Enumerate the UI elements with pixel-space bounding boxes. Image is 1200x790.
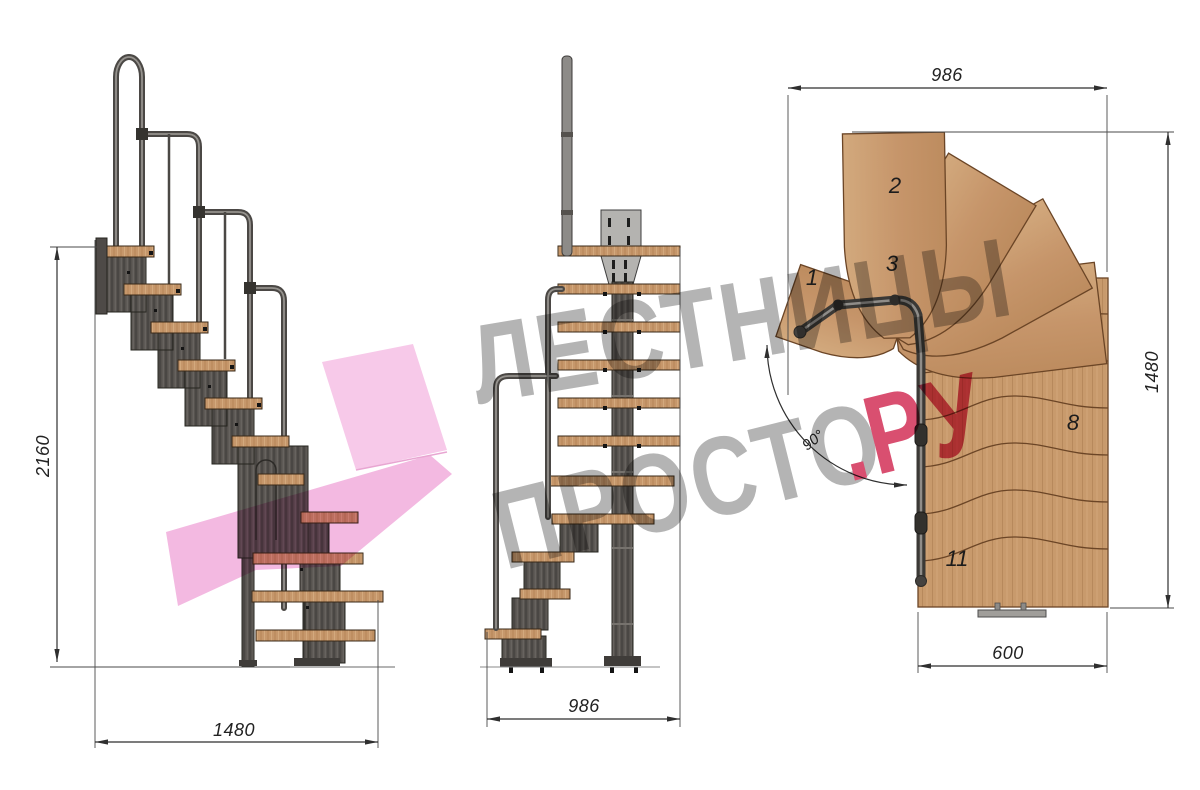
step-number: 11 <box>946 546 969 571</box>
plan-top-dim-label: 986 <box>931 65 963 85</box>
step-number: 2 <box>888 173 901 198</box>
watermark-arrow-square <box>322 344 447 470</box>
watermark: ЛЕСТНИЦЫ ПРОСТО .РУ <box>166 214 1022 606</box>
rail-end-cap <box>916 576 927 587</box>
front-width-dim-label: 986 <box>568 696 600 716</box>
wall-bracket <box>96 238 107 314</box>
rail-joint <box>915 512 927 534</box>
step-number: 8 <box>1067 410 1080 435</box>
drawing-page: 2160 1480 986 <box>0 0 1200 790</box>
plan-right-dim-label: 1480 <box>1142 351 1162 393</box>
technical-drawing: 2160 1480 986 <box>0 0 1200 790</box>
plan-bottom-dim-label: 600 <box>992 643 1024 663</box>
base-plate-bar <box>978 610 1046 617</box>
height-dim-label: 2160 <box>33 435 53 478</box>
length-dim-label: 1480 <box>213 720 255 740</box>
top-handrail-post <box>562 56 572 256</box>
